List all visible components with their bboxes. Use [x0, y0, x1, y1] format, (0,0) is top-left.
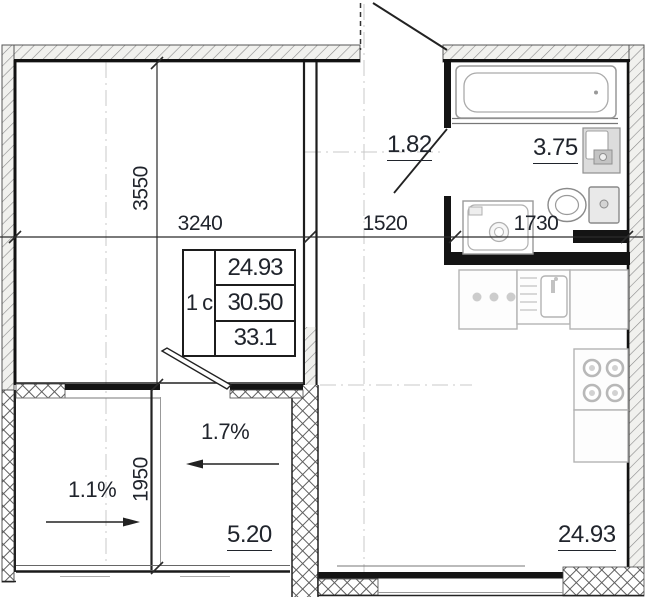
dim-room-depth: 3550	[131, 160, 152, 218]
unit-type: 1 с	[184, 251, 214, 355]
bathroom-sink	[583, 128, 620, 173]
living-bottom-wall	[318, 566, 644, 596]
slope-right-label: 1.7%	[201, 421, 249, 443]
hob-dot	[507, 293, 516, 302]
entrance-door	[361, 3, 448, 50]
area-bathroom: 3.75	[533, 136, 578, 160]
area-balcony: 5.20	[227, 523, 272, 547]
balcony-partition	[152, 390, 161, 570]
window-frame	[318, 572, 563, 579]
table-living-area: 24.93	[216, 251, 294, 284]
dim-room-width: 3240	[168, 213, 232, 234]
kitchen-counters	[459, 270, 628, 462]
balcony-left-wall	[2, 390, 16, 582]
dim-balcony-depth: 1950	[131, 451, 152, 509]
slope-left-label: 1.1%	[68, 479, 116, 501]
plan-graphics	[0, 0, 646, 600]
area-living-kitchen: 24.93	[558, 523, 616, 547]
area-hallway: 1.82	[387, 133, 432, 157]
arrow-right	[123, 518, 140, 527]
hob-dot	[473, 293, 482, 302]
table-total-with-balcony: 33.1	[216, 320, 294, 355]
floor-plan: 3550 3240 1520 1730 1950 1.82 3.75 5.20 …	[0, 0, 646, 600]
window-sill	[65, 384, 160, 390]
bathtub	[452, 66, 618, 124]
table-total-area: 30.50	[216, 284, 294, 319]
dim-hall-width: 1520	[353, 213, 417, 234]
kitchen-sink	[517, 270, 570, 324]
dim-bathroom-width: 1730	[504, 213, 568, 234]
arrow-left	[186, 460, 203, 469]
stove	[574, 349, 628, 410]
unit-table: 1 с 24.93 30.50 33.1	[182, 249, 296, 357]
hob-dot	[490, 293, 499, 302]
